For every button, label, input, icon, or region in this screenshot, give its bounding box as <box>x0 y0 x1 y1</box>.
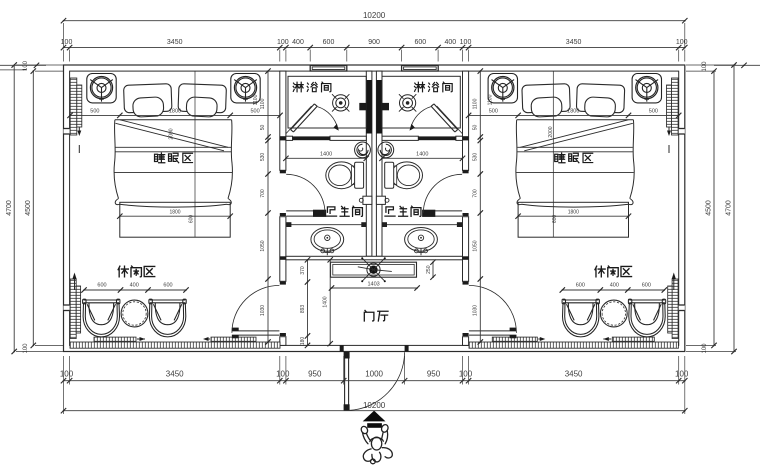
svg-text:1800: 1800 <box>568 209 579 215</box>
svg-text:4700: 4700 <box>6 200 13 216</box>
svg-text:3450: 3450 <box>565 370 583 379</box>
svg-text:600: 600 <box>414 39 426 46</box>
svg-text:1100: 1100 <box>472 98 478 109</box>
svg-text:600: 600 <box>576 282 585 288</box>
svg-text:50: 50 <box>260 125 266 131</box>
svg-text:1400: 1400 <box>320 151 332 157</box>
svg-text:3450: 3450 <box>167 39 183 46</box>
svg-text:250: 250 <box>426 265 432 274</box>
svg-text:100: 100 <box>276 370 290 379</box>
svg-text:100: 100 <box>676 39 688 46</box>
svg-text:500: 500 <box>90 109 99 115</box>
svg-text:1000: 1000 <box>365 370 383 379</box>
svg-text:600: 600 <box>189 215 195 224</box>
svg-text:700: 700 <box>260 189 266 198</box>
svg-text:400: 400 <box>610 282 619 288</box>
svg-text:600: 600 <box>642 282 651 288</box>
svg-text:3450: 3450 <box>566 39 582 46</box>
svg-text:1100: 1100 <box>253 94 259 105</box>
svg-text:900: 900 <box>368 39 380 46</box>
svg-text:180: 180 <box>300 337 306 346</box>
svg-text:4500: 4500 <box>25 200 32 216</box>
svg-text:600: 600 <box>552 215 558 224</box>
svg-text:1403: 1403 <box>367 281 379 287</box>
svg-text:893: 893 <box>300 305 306 314</box>
svg-text:1030: 1030 <box>260 305 266 316</box>
svg-text:100: 100 <box>23 343 29 354</box>
svg-text:500: 500 <box>251 109 260 115</box>
svg-text:1400: 1400 <box>322 296 328 307</box>
svg-text:400: 400 <box>130 282 139 288</box>
svg-text:100: 100 <box>60 370 74 379</box>
svg-text:1800: 1800 <box>169 209 180 215</box>
svg-text:600: 600 <box>97 282 106 288</box>
svg-text:100: 100 <box>277 39 289 46</box>
svg-text:1100: 1100 <box>488 94 494 105</box>
svg-text:530: 530 <box>260 153 266 162</box>
svg-text:1100: 1100 <box>260 98 266 109</box>
svg-text:500: 500 <box>649 109 658 115</box>
svg-text:100: 100 <box>675 370 689 379</box>
svg-text:1050: 1050 <box>260 240 266 251</box>
svg-text:950: 950 <box>427 370 441 379</box>
svg-text:530: 530 <box>472 153 478 162</box>
svg-text:100: 100 <box>459 370 473 379</box>
svg-text:50: 50 <box>472 125 478 131</box>
svg-text:2000: 2000 <box>169 128 175 139</box>
svg-text:100: 100 <box>61 39 73 46</box>
svg-text:2000: 2000 <box>548 126 554 137</box>
svg-text:1400: 1400 <box>416 151 428 157</box>
svg-text:500: 500 <box>489 109 498 115</box>
svg-text:370: 370 <box>300 266 306 275</box>
svg-text:4500: 4500 <box>706 200 713 216</box>
svg-text:10200: 10200 <box>363 401 386 410</box>
svg-text:100: 100 <box>460 39 472 46</box>
svg-text:400: 400 <box>292 39 304 46</box>
svg-text:600: 600 <box>163 282 172 288</box>
svg-text:400: 400 <box>444 39 456 46</box>
svg-text:950: 950 <box>308 370 322 379</box>
svg-text:3450: 3450 <box>166 370 184 379</box>
svg-text:700: 700 <box>472 189 478 198</box>
svg-text:1050: 1050 <box>472 240 478 251</box>
svg-text:1800: 1800 <box>169 109 181 115</box>
svg-text:100: 100 <box>702 343 708 354</box>
svg-text:1030: 1030 <box>472 305 478 316</box>
svg-text:1800: 1800 <box>567 109 579 115</box>
svg-text:600: 600 <box>323 39 335 46</box>
svg-text:4700: 4700 <box>726 200 733 216</box>
svg-text:10200: 10200 <box>363 11 386 20</box>
svg-text:100: 100 <box>702 61 708 72</box>
